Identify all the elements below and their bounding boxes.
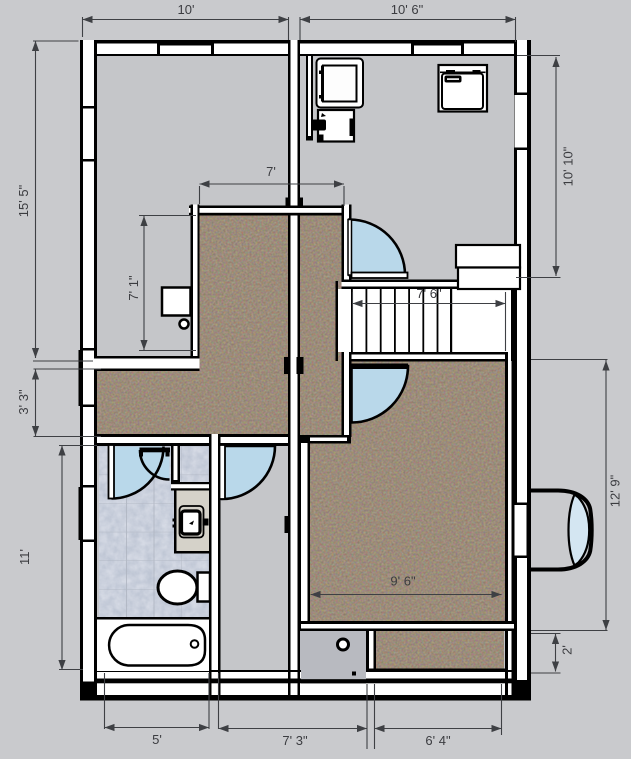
- svg-text:15' 5": 15' 5": [16, 184, 31, 217]
- svg-text:3' 3": 3' 3": [16, 389, 31, 415]
- svg-text:6' 4": 6' 4": [425, 733, 451, 748]
- svg-text:7' 1": 7' 1": [126, 275, 141, 301]
- svg-text:5': 5': [152, 732, 162, 747]
- svg-text:2': 2': [560, 645, 575, 655]
- svg-text:10' 10": 10' 10": [561, 146, 576, 186]
- svg-text:11': 11': [17, 549, 32, 565]
- svg-text:9' 6": 9' 6": [390, 574, 416, 589]
- svg-text:7' 3": 7' 3": [282, 733, 308, 748]
- svg-text:7': 7': [266, 164, 276, 179]
- svg-text:10': 10': [178, 2, 195, 17]
- svg-text:7' 6": 7' 6": [416, 286, 442, 301]
- svg-text:10' 6": 10' 6": [391, 2, 424, 17]
- svg-text:12' 9": 12' 9": [608, 474, 623, 507]
